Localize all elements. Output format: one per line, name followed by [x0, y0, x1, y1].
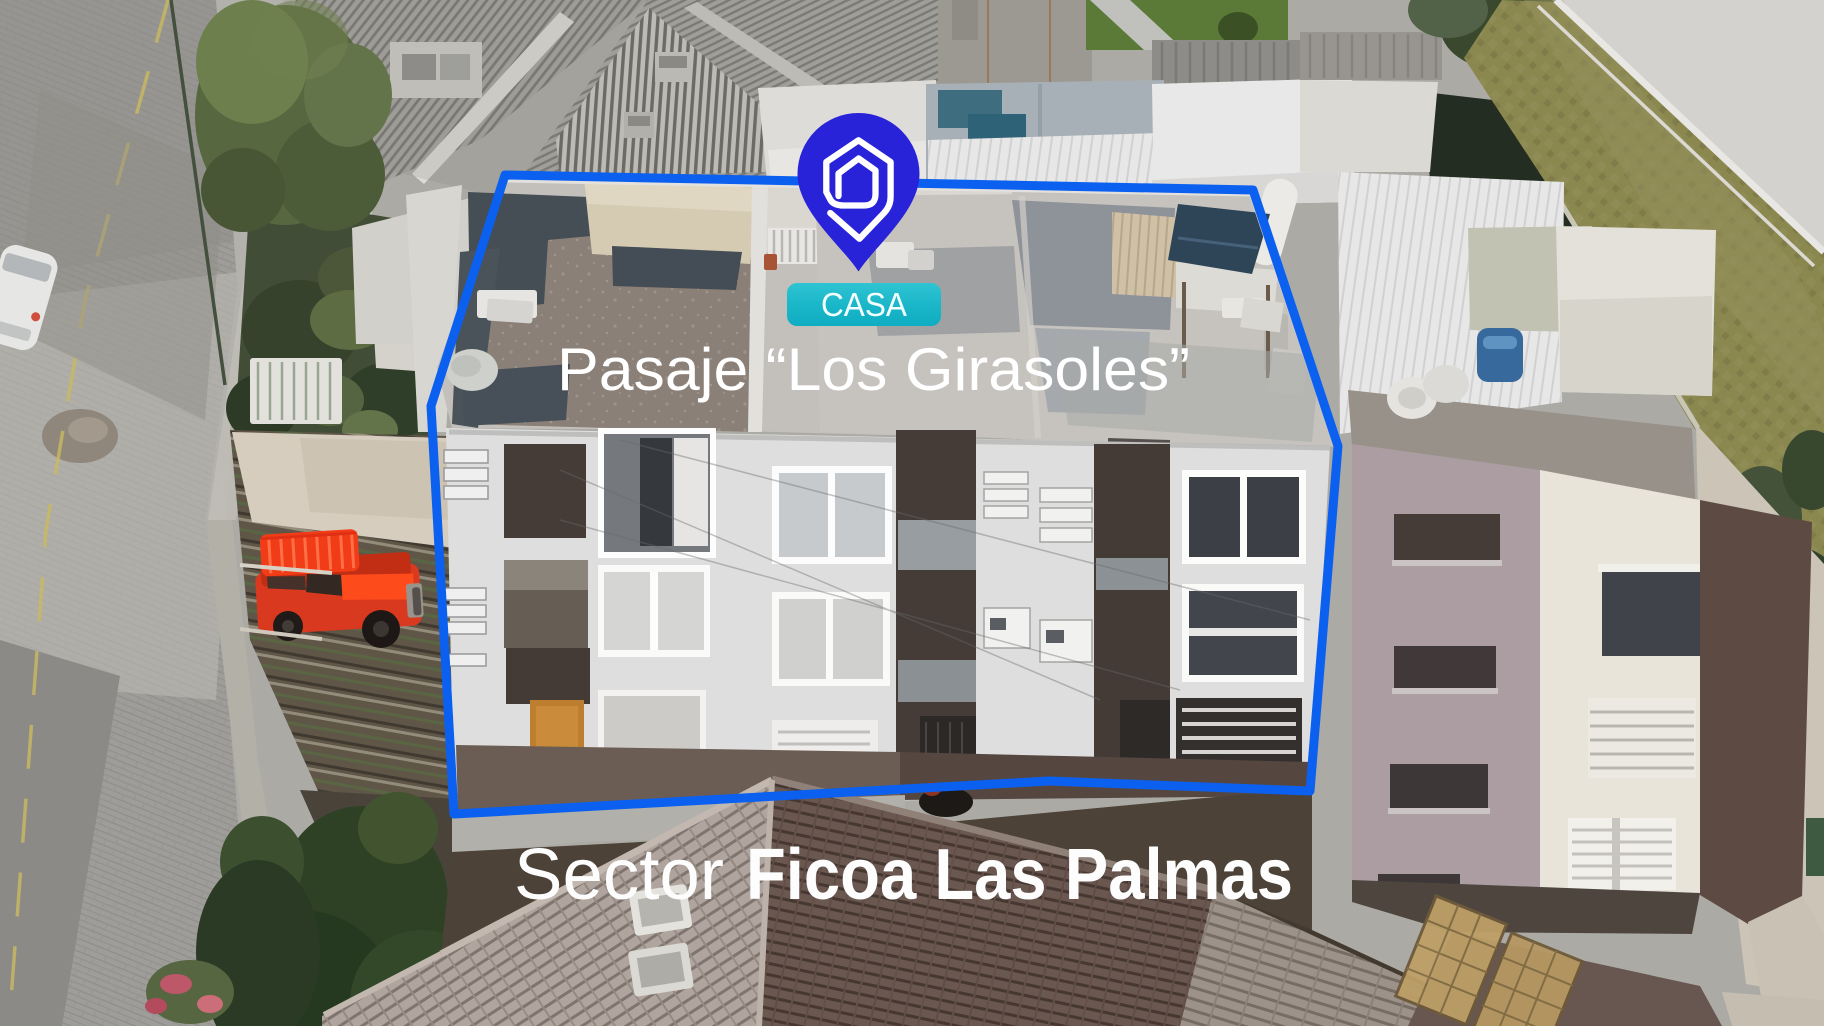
svg-text:Pasaje “Los Girasoles”: Pasaje “Los Girasoles”: [557, 336, 1190, 403]
svg-text:CASA: CASA: [821, 286, 907, 323]
svg-text:SectorFicoa Las Palmas: SectorFicoa Las Palmas: [514, 835, 1293, 915]
